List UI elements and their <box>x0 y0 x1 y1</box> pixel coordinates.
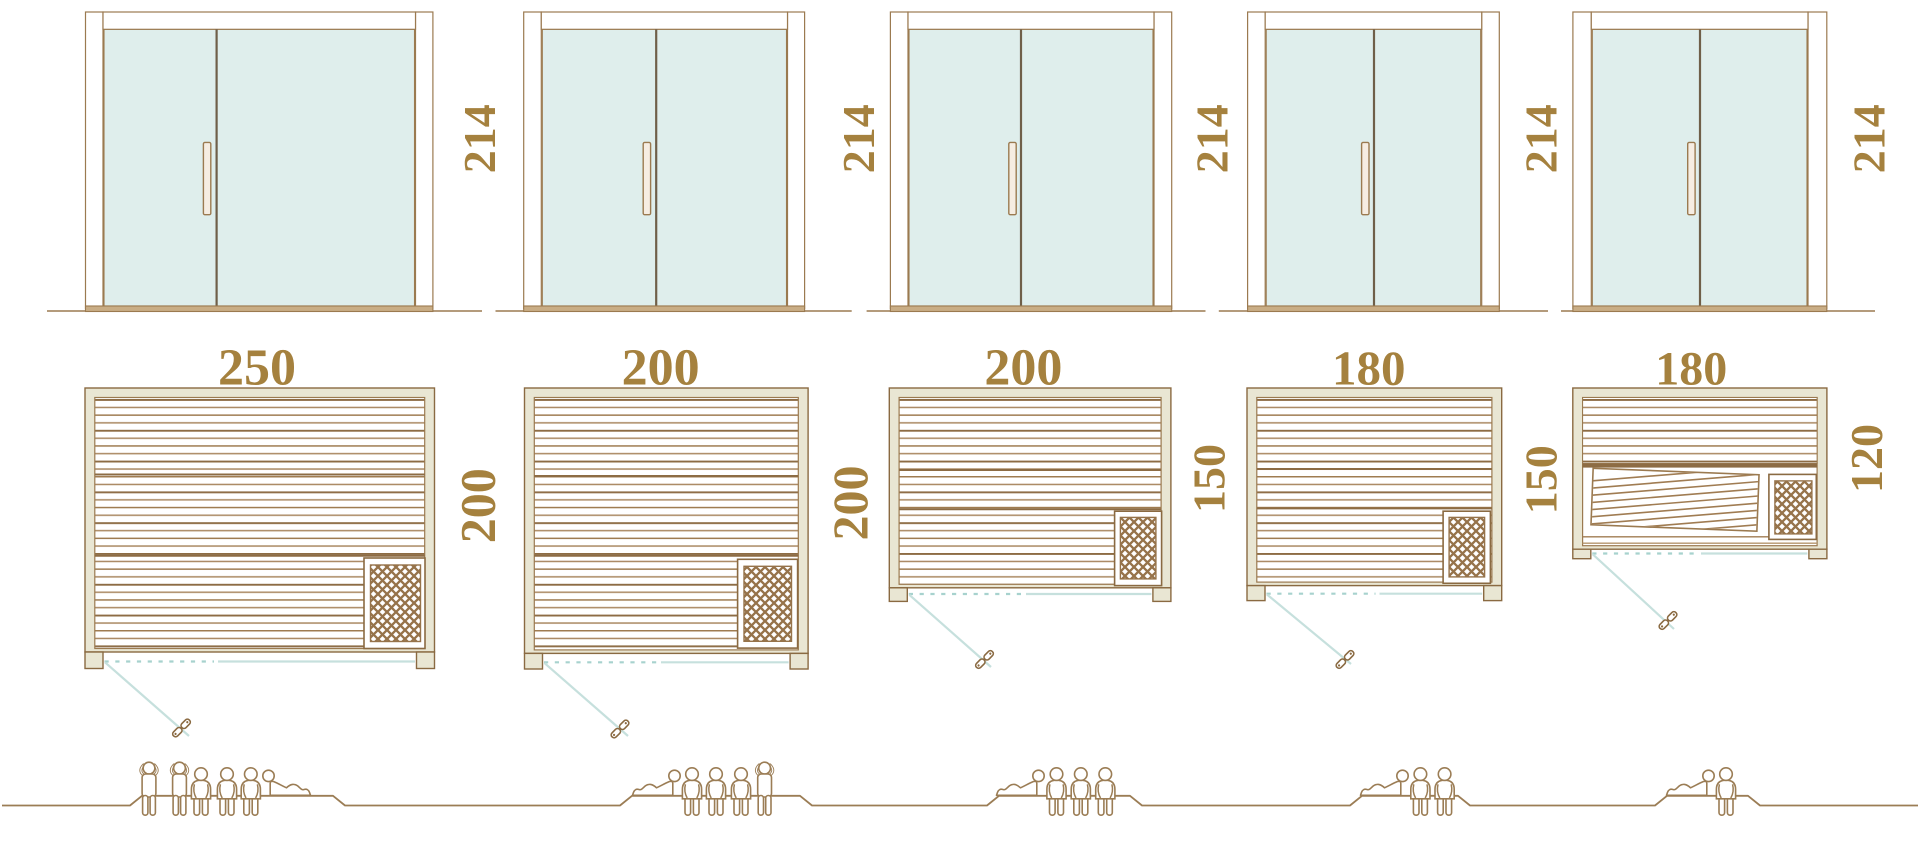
svg-text:214: 214 <box>1186 104 1237 173</box>
svg-text:120: 120 <box>1841 424 1892 493</box>
svg-text:180: 180 <box>1332 341 1406 396</box>
svg-text:214: 214 <box>833 104 884 173</box>
svg-text:214: 214 <box>1844 104 1895 173</box>
svg-text:150: 150 <box>1516 445 1567 514</box>
svg-text:200: 200 <box>822 466 878 541</box>
svg-text:214: 214 <box>454 104 505 173</box>
svg-text:214: 214 <box>1516 104 1567 173</box>
svg-text:200: 200 <box>450 468 506 543</box>
svg-text:150: 150 <box>1184 444 1235 513</box>
